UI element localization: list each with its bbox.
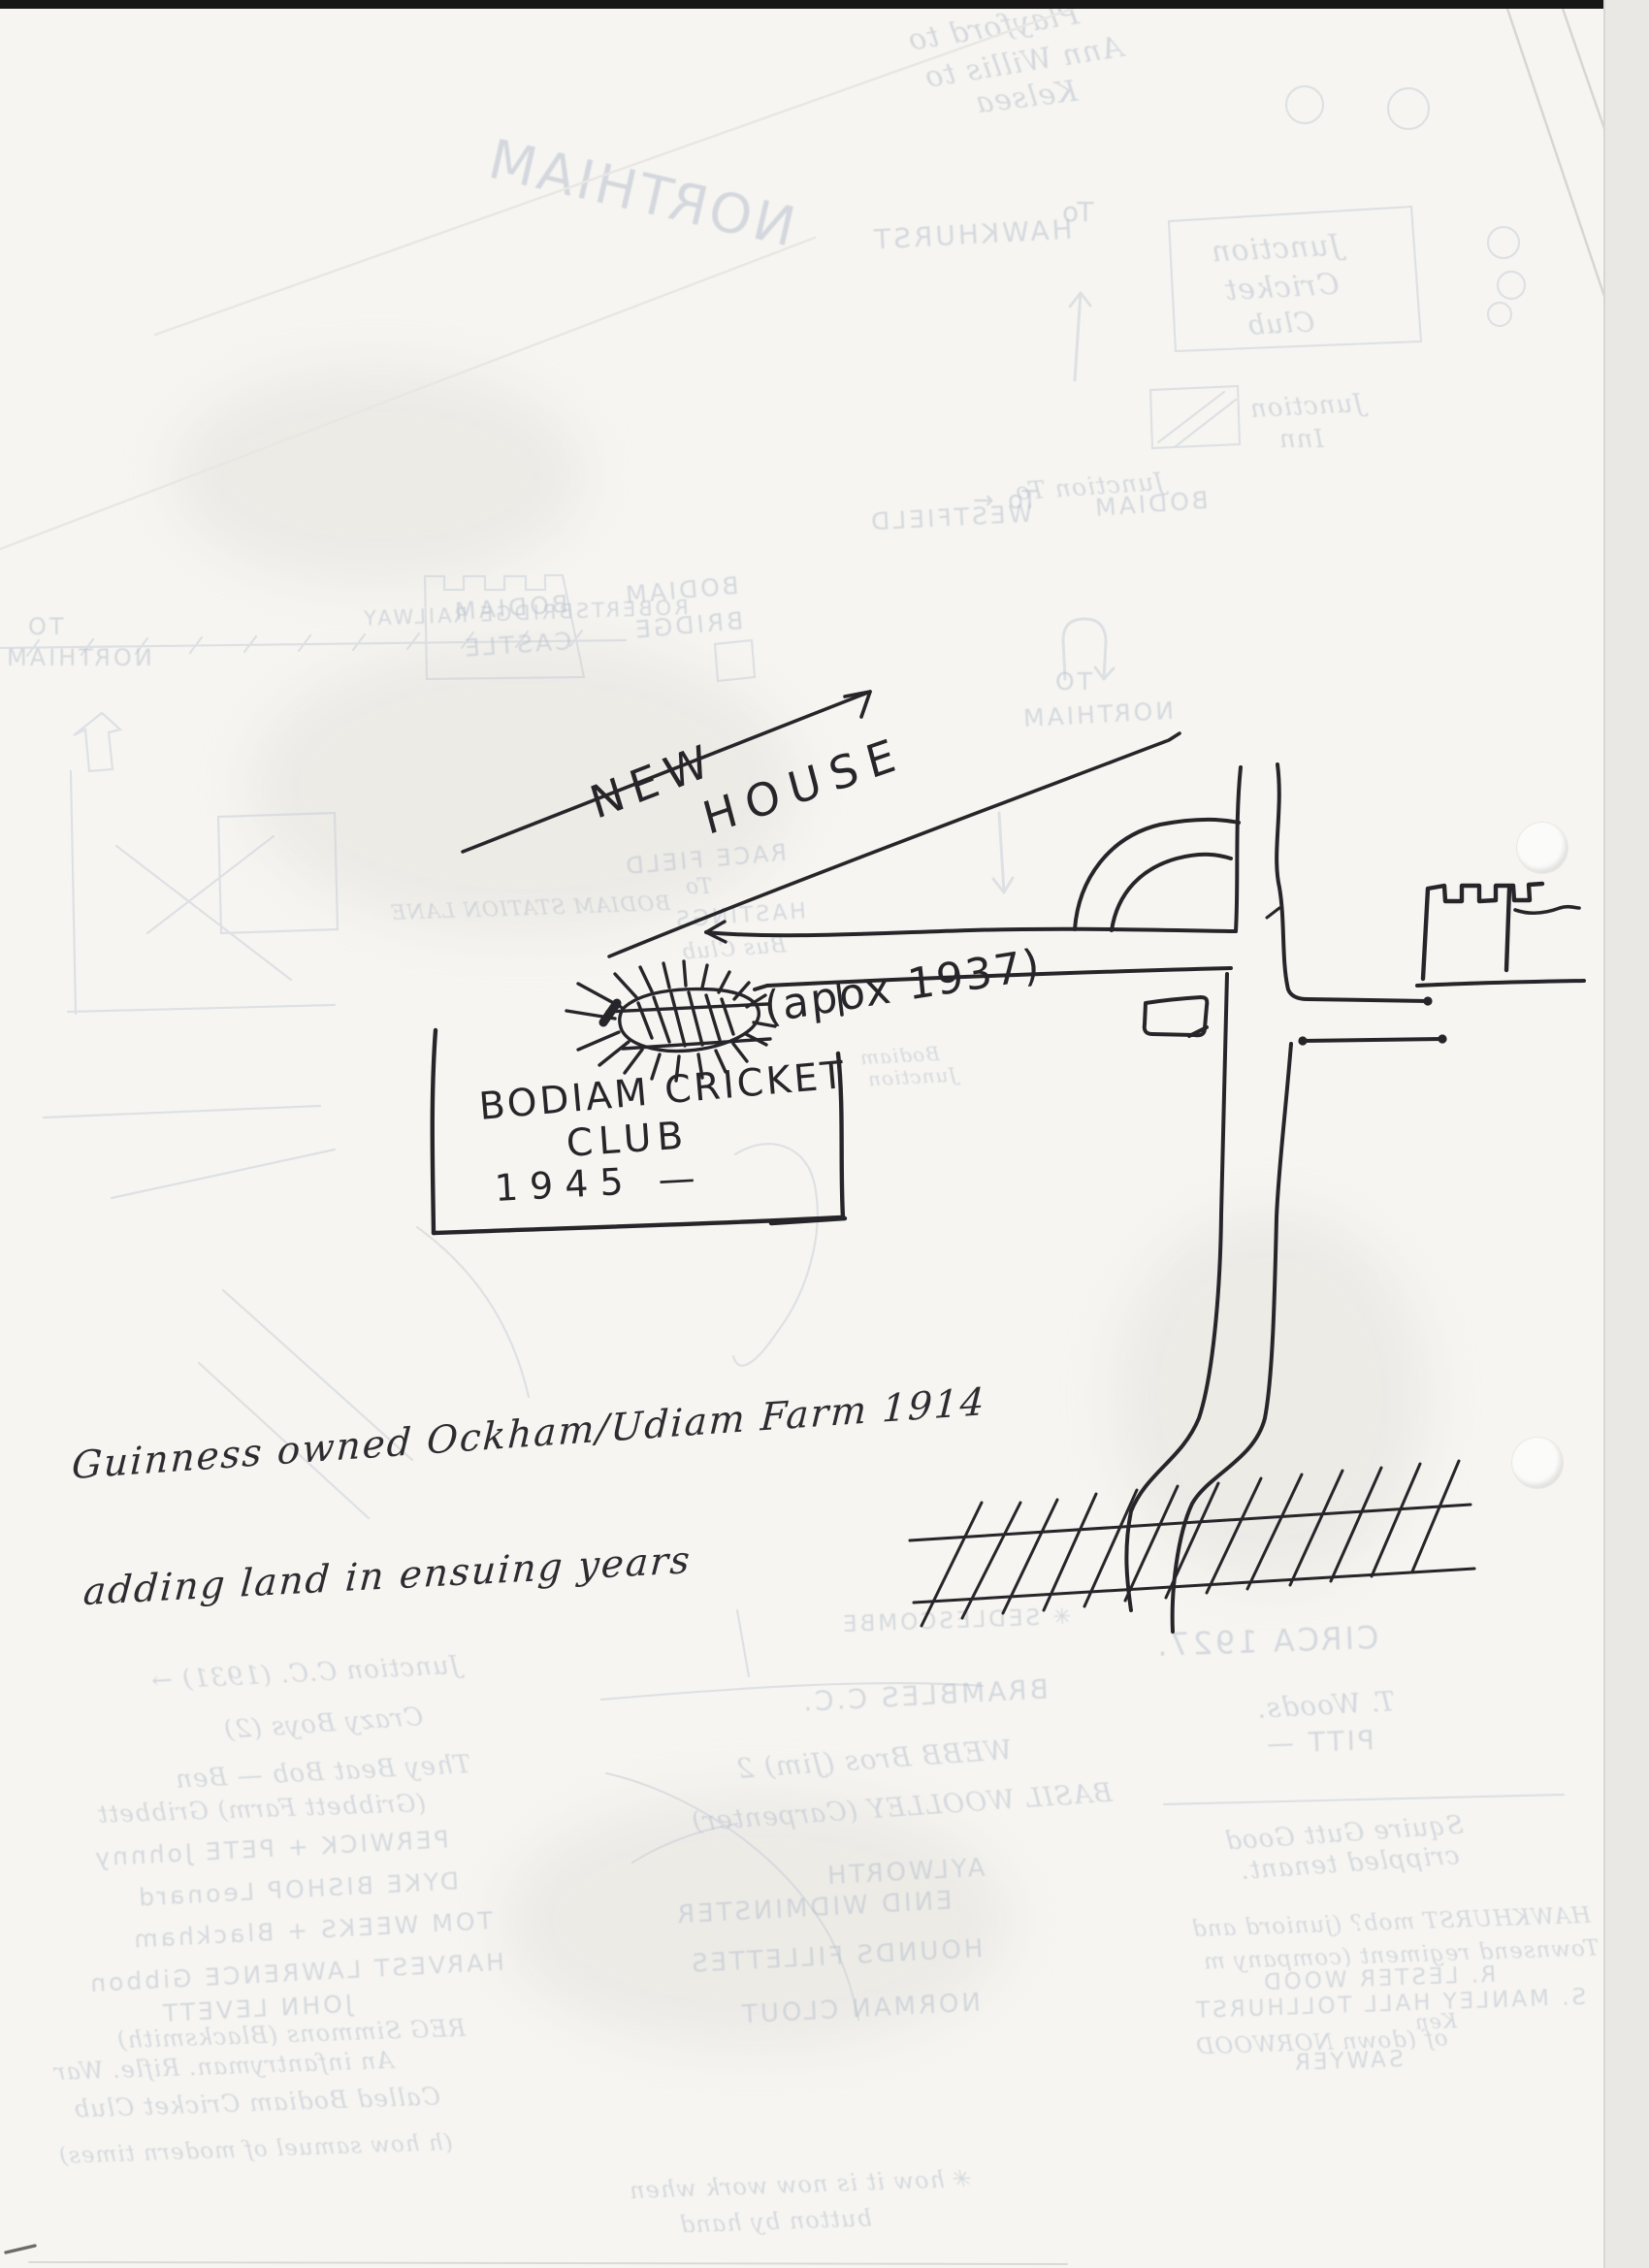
paper-crease-streak	[0, 2, 1091, 549]
bottom-corner-mark	[6, 2246, 35, 2252]
scan-edge-right-strip	[1603, 0, 1649, 2268]
scanned-sketch-map-page: Playford toAnn Willis toKelseaNORTHIAMTo…	[0, 0, 1649, 2268]
punch-hole	[1512, 1438, 1563, 1488]
page-artifacts	[0, 0, 1649, 2268]
scan-edge-top-bar	[0, 0, 1649, 9]
punch-hole	[1517, 823, 1568, 873]
bottom-edge-line	[29, 2262, 1067, 2264]
